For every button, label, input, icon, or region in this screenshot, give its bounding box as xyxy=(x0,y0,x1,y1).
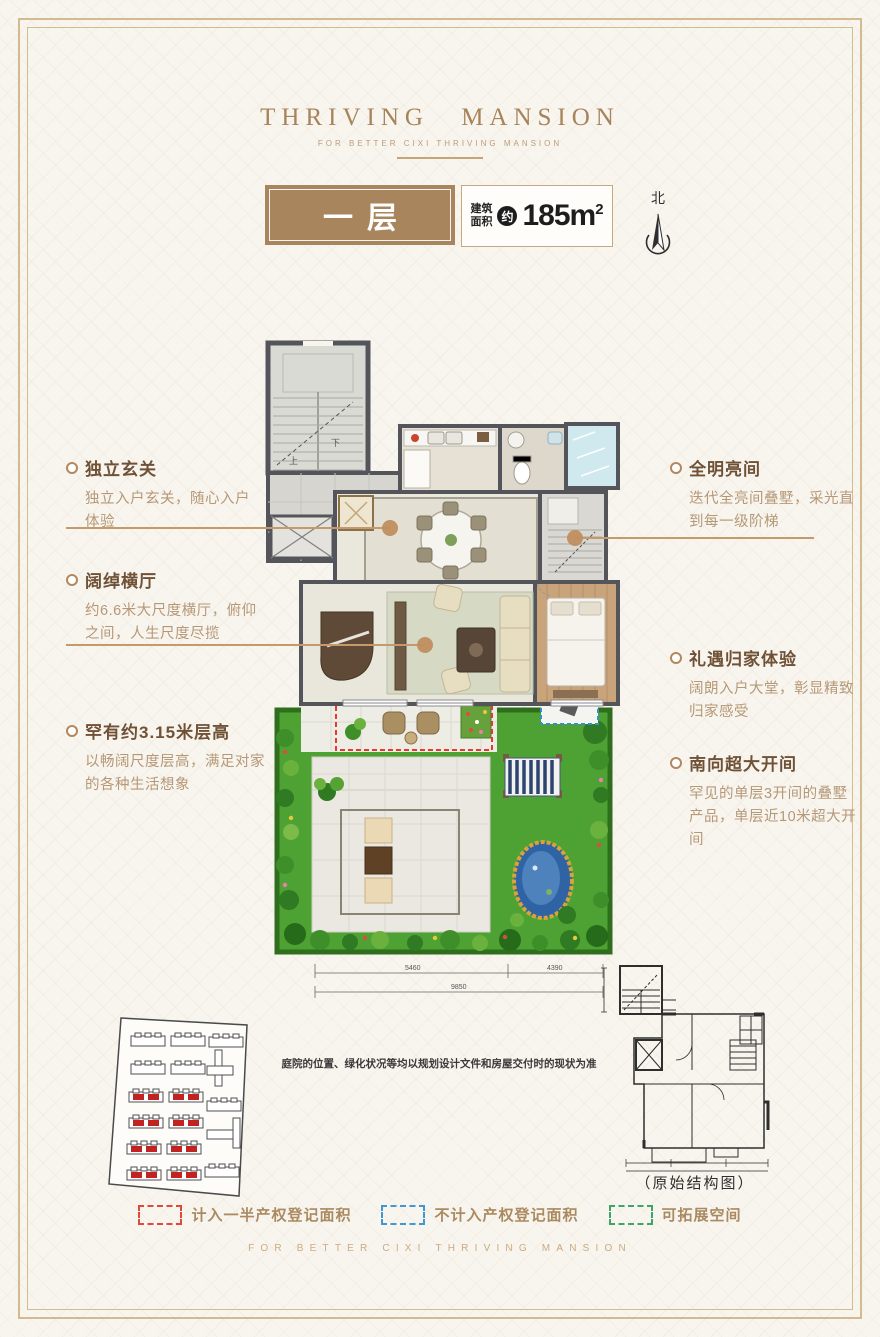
leader-line-bright xyxy=(575,537,814,539)
floor-plan: 上 下 xyxy=(265,340,620,960)
floor-label: 一层 xyxy=(269,189,451,241)
disclaimer-note: 庭院的位置、绿化状况等均以规划设计文件和房屋交付时的现状为准 xyxy=(279,1056,599,1071)
legend-item-excluded-area: 不计入产权登记面积 xyxy=(381,1204,578,1225)
footer-tagline: FOR BETTER CIXI THRIVING MANSION xyxy=(0,1243,880,1254)
north-indicator: 北 xyxy=(642,188,674,256)
stair-down-label: 下 xyxy=(331,438,340,448)
garden-bench xyxy=(503,754,562,798)
structure-diagram xyxy=(596,952,794,1174)
dining-room xyxy=(335,492,540,592)
structure-caption: （原始结构图） xyxy=(600,1172,790,1193)
feature-desc: 迭代全亮间叠墅，采光直到每一级阶梯 xyxy=(670,488,857,534)
light-well xyxy=(566,424,618,488)
brand-logo: THRIVING MANSION xyxy=(0,104,880,132)
bathroom xyxy=(500,426,566,492)
area-prefix: 建筑 面积 xyxy=(470,203,492,228)
feature-title: 全明亮间 xyxy=(670,455,870,480)
area-prefix-line1: 建筑 xyxy=(470,203,492,216)
leader-dot-living xyxy=(417,637,433,653)
ring-bullet-icon xyxy=(670,757,682,769)
feature-title: 礼遇归家体验 xyxy=(670,645,870,670)
site-plan xyxy=(85,1012,255,1207)
ring-bullet-icon xyxy=(66,462,78,474)
blue-dashed-swatch-icon xyxy=(381,1205,425,1225)
area-exponent: 2 xyxy=(595,201,603,218)
area-value: 185m2 xyxy=(522,199,603,233)
feature-bright-rooms: 全明亮间 迭代全亮间叠墅，采光直到每一级阶梯 xyxy=(670,455,870,534)
sofa xyxy=(500,596,530,692)
area-prefix-line2: 面积 xyxy=(470,216,492,229)
bedroom xyxy=(535,582,618,704)
feature-entry-hall: 独立玄关 独立入户玄关，随心入户体验 xyxy=(66,455,271,534)
feature-ceiling-height: 罕有约3.15米层高 以畅阔尺度层高，满足对家的各种生活想象 xyxy=(66,718,271,797)
red-dashed-swatch-icon xyxy=(138,1205,182,1225)
leader-line-living xyxy=(66,644,425,646)
stairwell xyxy=(268,341,368,473)
feature-homecoming: 礼遇归家体验 阔朗入户大堂，彰显精致归家感受 xyxy=(670,645,870,724)
compass-icon xyxy=(642,208,674,256)
south-windows xyxy=(343,700,603,706)
approx-badge: 约 xyxy=(497,206,517,226)
brand-tagline: FOR BETTER CIXI THRIVING MANSION xyxy=(0,139,880,148)
legend-item-expandable: 可拓展空间 xyxy=(609,1204,742,1225)
stair-up-label: 上 xyxy=(289,456,298,466)
feature-wide-living: 阔绰横厅 约6.6米大尺度横厅，俯仰之间，人生尺度尽揽 xyxy=(66,567,271,646)
feature-title: 南向超大开间 xyxy=(670,750,870,775)
feature-desc: 阔朗入户大堂，彰显精致归家感受 xyxy=(670,678,857,724)
ring-bullet-icon xyxy=(66,574,78,586)
feature-title: 独立玄关 xyxy=(66,455,271,480)
feature-desc: 罕见的单层3开间的叠墅产品，单层近10米超大开间 xyxy=(670,783,861,853)
leader-dot-entry xyxy=(382,520,398,536)
area-legend: 计入一半产权登记面积 不计入产权登记面积 可拓展空间 xyxy=(0,1204,880,1225)
green-dashed-swatch-icon xyxy=(609,1205,653,1225)
leader-dot-bright xyxy=(567,530,583,546)
feature-title: 罕有约3.15米层高 xyxy=(66,718,271,743)
leader-line-entry xyxy=(66,527,390,529)
legend-item-half-area: 计入一半产权登记面积 xyxy=(138,1204,351,1225)
garden-pond xyxy=(514,842,572,918)
flyer-page: THRIVING MANSION FOR BETTER CIXI THRIVIN… xyxy=(0,0,880,1337)
feature-title: 阔绰横厅 xyxy=(66,567,271,592)
north-label: 北 xyxy=(642,188,674,208)
dimension-lines: 5460 4390 9850 xyxy=(265,962,620,1007)
feature-desc: 以畅阔尺度层高，满足对家的各种生活想象 xyxy=(66,751,267,797)
dim-right: 4390 xyxy=(547,965,563,972)
feature-desc: 约6.6米大尺度横厅，俯仰之间，人生尺度尽揽 xyxy=(66,600,263,646)
feature-south-bay: 南向超大开间 罕见的单层3开间的叠墅产品，单层近10米超大开间 xyxy=(670,750,870,853)
dim-left: 5460 xyxy=(405,965,421,972)
brand-block: THRIVING MANSION FOR BETTER CIXI THRIVIN… xyxy=(0,104,880,159)
dim-total: 9850 xyxy=(451,984,467,991)
kitchen xyxy=(400,426,500,492)
area-box: 建筑 面积 约 185m2 xyxy=(461,185,613,247)
rooms: 上 下 xyxy=(268,341,618,706)
brand-divider xyxy=(397,157,483,159)
floor-label-box: 一层 xyxy=(265,185,455,245)
ring-bullet-icon xyxy=(670,652,682,664)
tv-console xyxy=(395,602,406,690)
ring-bullet-icon xyxy=(66,725,78,737)
ring-bullet-icon xyxy=(670,462,682,474)
